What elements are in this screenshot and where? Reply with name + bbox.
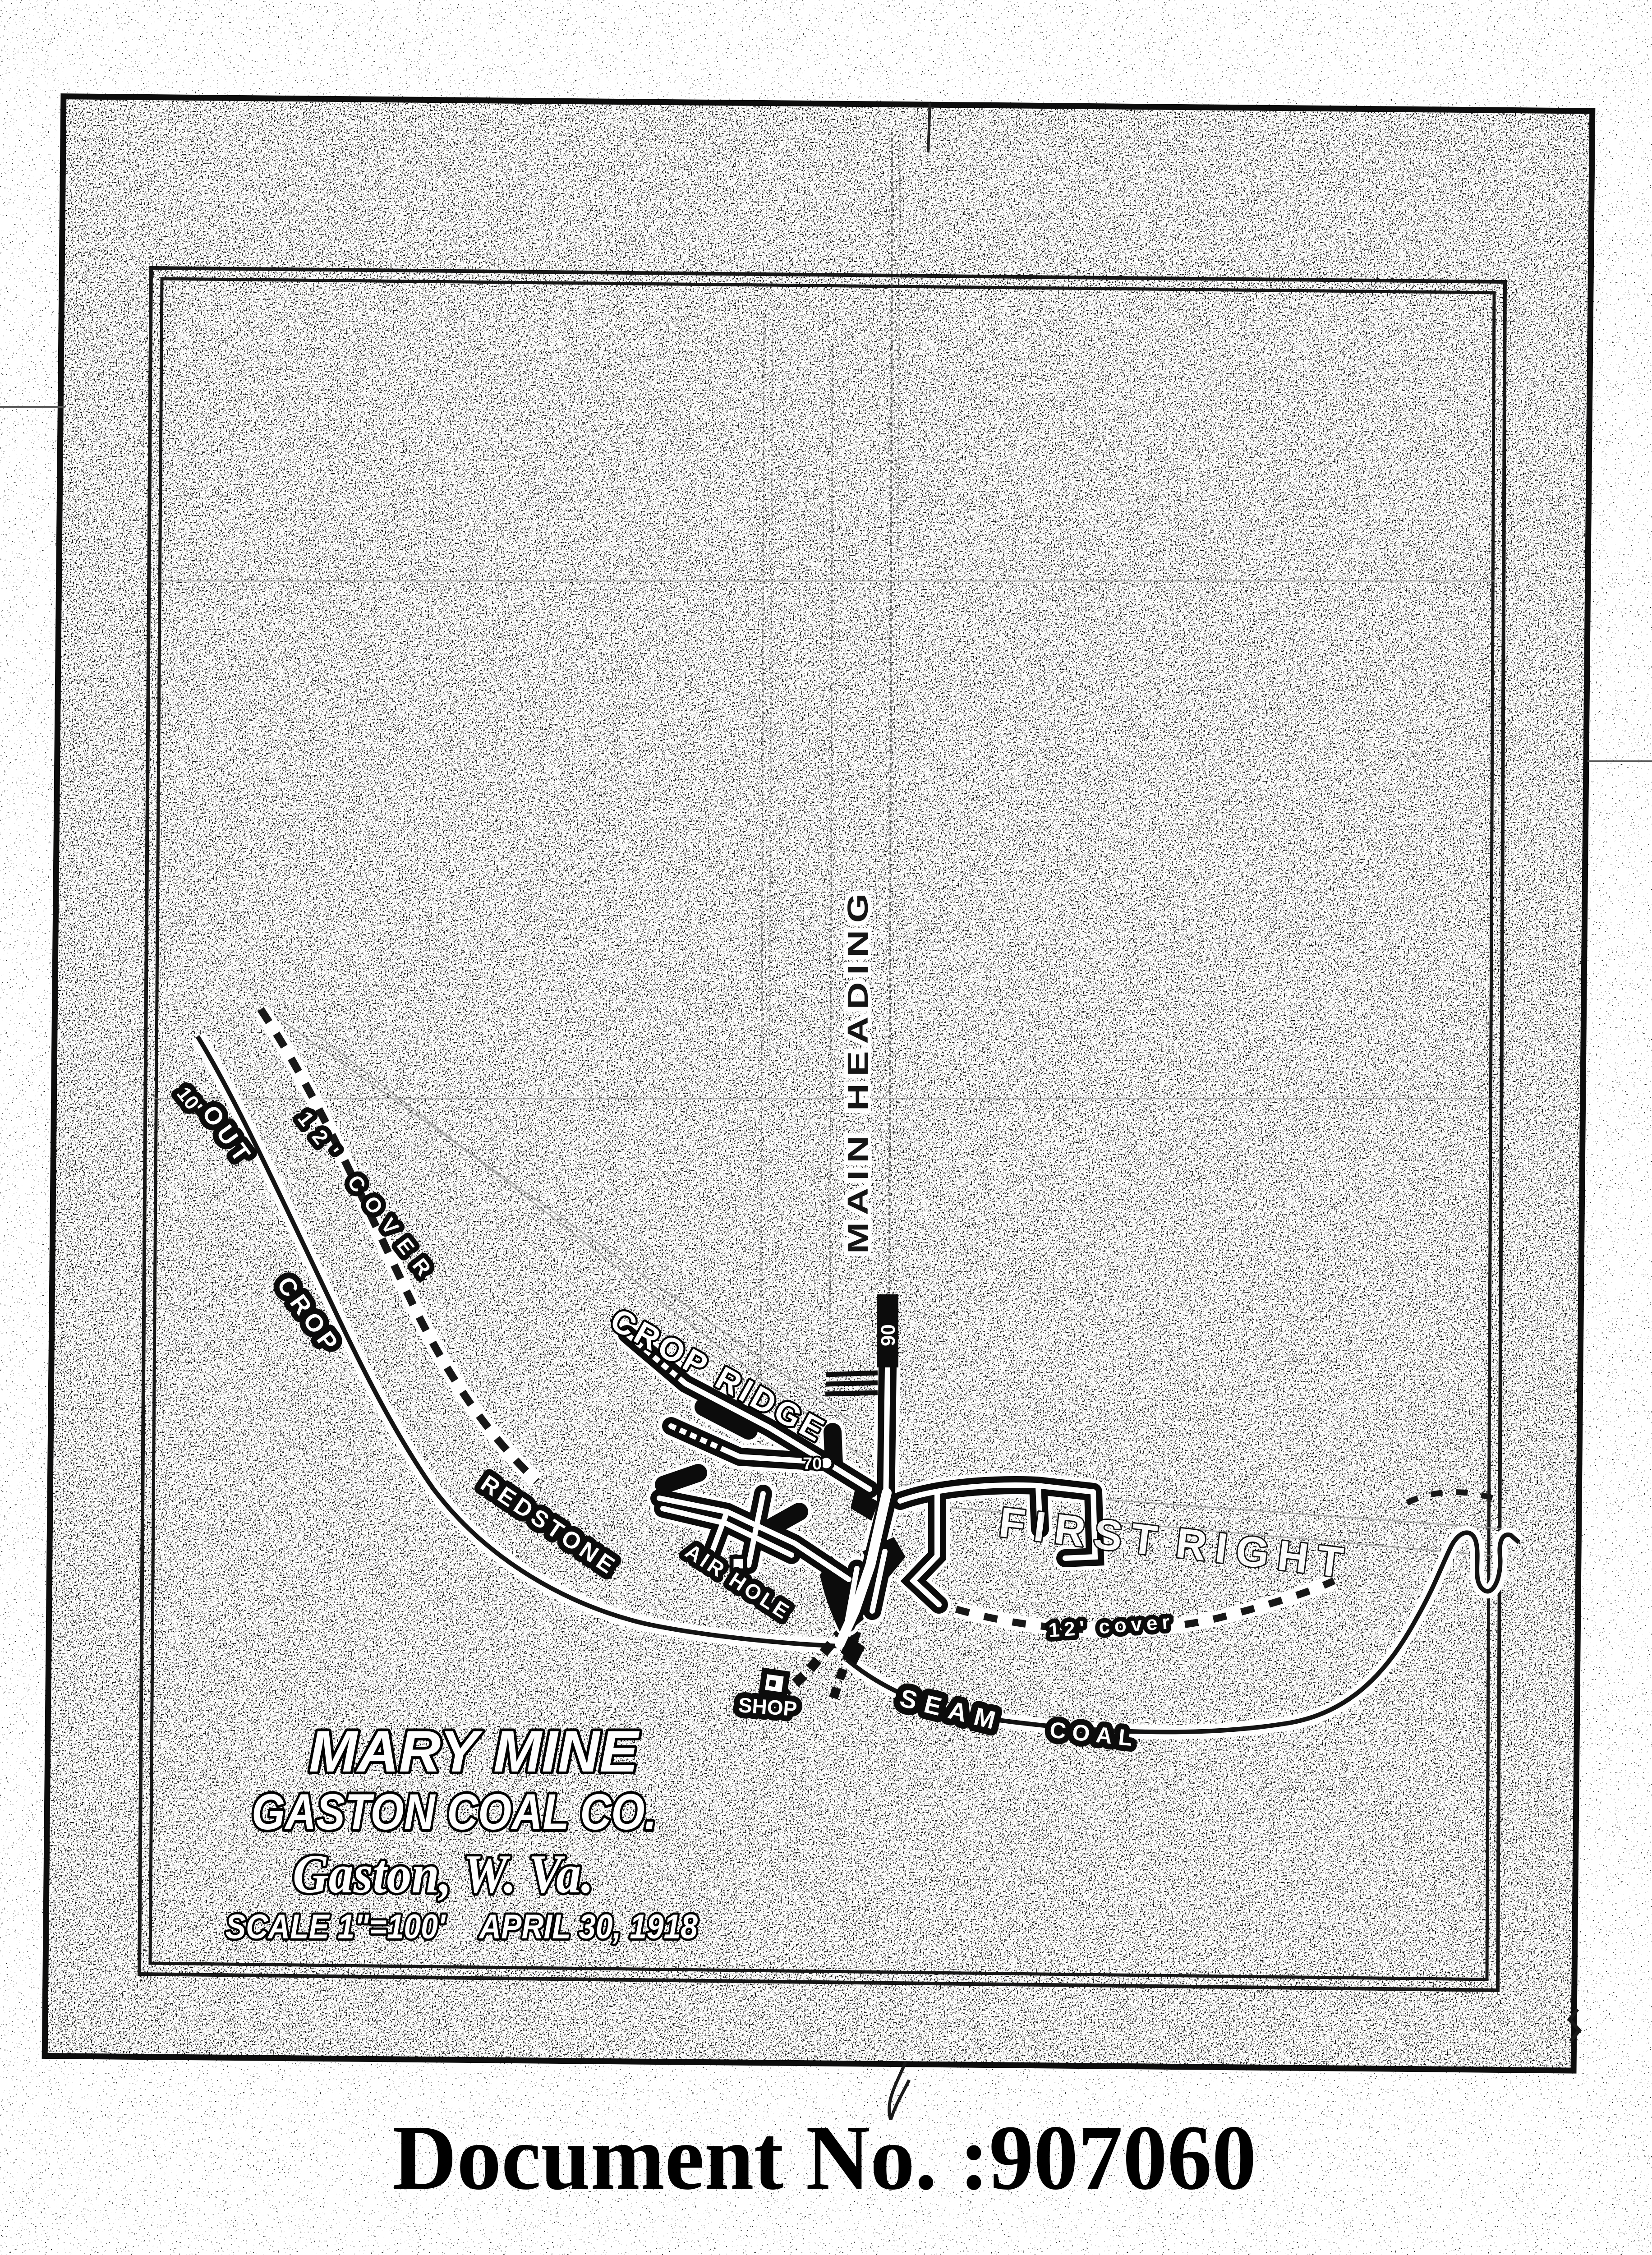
svg-text:90: 90: [877, 1324, 899, 1346]
svg-text:Document No. :907060: Document No. :907060: [392, 2106, 1256, 2209]
svg-text:MAIN HEADING: MAIN HEADING: [842, 886, 874, 1254]
svg-text:70: 70: [803, 1454, 822, 1473]
svg-text:SHOP: SHOP: [737, 1693, 798, 1721]
svg-text:SCALE 1"=100' APRIL 30, 191: SCALE 1"=100' APRIL 30, 1918: [225, 1908, 698, 1946]
svg-text:MARY MINE: MARY MINE: [309, 1718, 640, 1784]
svg-text:GASTON COAL CO.: GASTON COAL CO.: [252, 1784, 657, 1840]
svg-text:Source: WVOMHS&T: Source: WVOMHS&T: [409, 2239, 1123, 2255]
svg-text:Gaston, W. Va.: Gaston, W. Va.: [293, 1844, 594, 1905]
